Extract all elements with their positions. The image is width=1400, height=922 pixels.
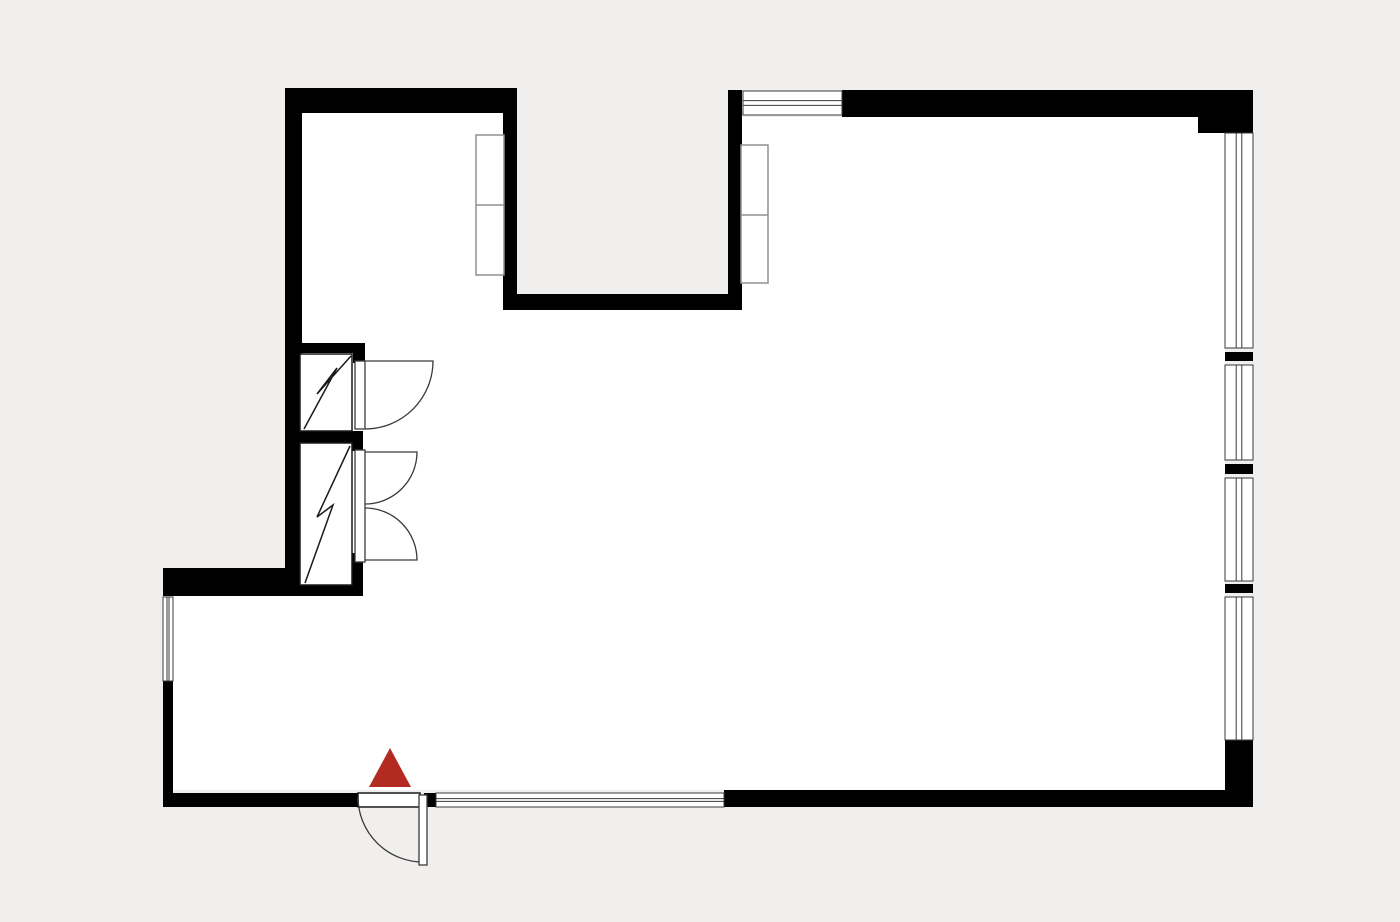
wall-bottom-left	[163, 793, 358, 807]
floor-bottom-left-room	[173, 595, 363, 790]
entry-door-leaf	[419, 795, 427, 865]
wall-closet-bottom-strip	[300, 585, 347, 596]
window-right-3	[1225, 478, 1253, 581]
entry-door-threshold	[358, 793, 420, 807]
window-right-2	[1225, 365, 1253, 460]
wall-left-lower	[163, 681, 173, 793]
closet-lower-door-leaf	[355, 450, 365, 562]
wall-notch-right	[728, 90, 742, 310]
wall-top-right-step	[1198, 115, 1253, 133]
closet-upper	[300, 354, 352, 431]
wall-right-bottom-corner	[1225, 740, 1253, 807]
window-top	[743, 91, 842, 115]
window-right-1	[1225, 133, 1253, 348]
wall-closet-top-jamb	[353, 343, 365, 363]
window-left	[163, 597, 173, 681]
wall-right-mullion-1	[1225, 352, 1253, 361]
floor-plan-svg	[0, 0, 1400, 922]
wall-bottom-left-band	[163, 568, 285, 596]
wall-top-right	[842, 90, 1253, 117]
window-bottom	[436, 793, 724, 807]
wall-bottom-right	[724, 790, 1253, 807]
floor-plan-viewer	[0, 0, 1400, 922]
wall-right-mullion-3	[1225, 584, 1253, 593]
closet-lower	[300, 443, 352, 585]
wall-top-left	[285, 88, 517, 113]
wall-notch-left	[503, 88, 517, 310]
closet-upper-door-leaf	[355, 361, 365, 429]
wall-right-mullion-2	[1225, 464, 1253, 474]
floor-right-room	[742, 117, 1225, 790]
cabinet-right-wall	[741, 145, 768, 283]
wall-notch-bottom	[503, 294, 742, 310]
floor-center-room	[505, 309, 742, 790]
window-right-4	[1225, 597, 1253, 740]
